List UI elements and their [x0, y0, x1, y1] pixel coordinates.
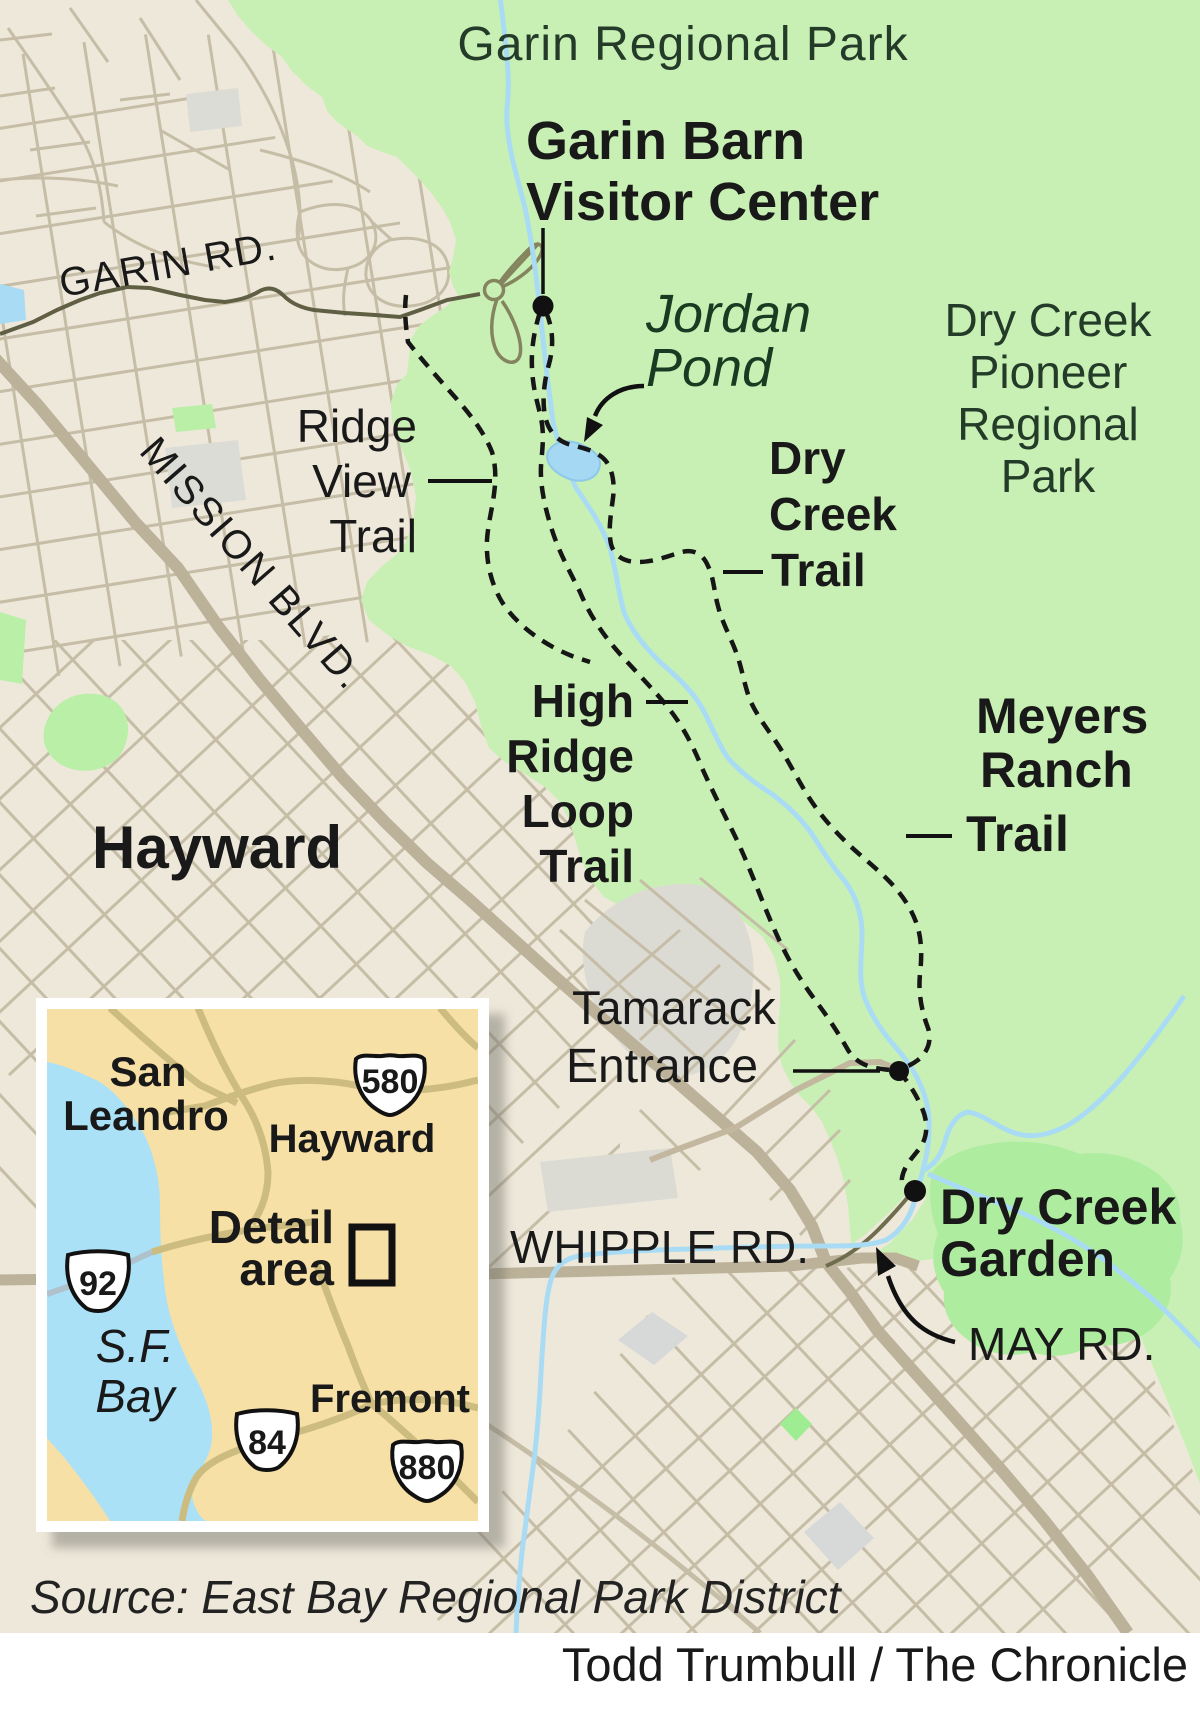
svg-text:Ridge: Ridge: [506, 730, 634, 782]
svg-text:Creek: Creek: [769, 488, 897, 540]
svg-text:Tamarack: Tamarack: [572, 981, 776, 1034]
svg-text:Pond: Pond: [646, 338, 774, 398]
svg-text:Trail: Trail: [966, 806, 1069, 862]
svg-text:WHIPPLE RD.: WHIPPLE RD.: [510, 1221, 809, 1273]
svg-text:Garin Regional Park: Garin Regional Park: [457, 18, 908, 71]
svg-text:92: 92: [79, 1265, 117, 1303]
svg-text:S.F.: S.F.: [96, 1320, 174, 1372]
svg-text:Regional: Regional: [957, 398, 1139, 450]
svg-text:MAY RD.: MAY RD.: [968, 1318, 1155, 1370]
svg-text:Dry Creek: Dry Creek: [944, 294, 1152, 346]
svg-text:Park: Park: [1001, 450, 1097, 502]
svg-text:84: 84: [248, 1424, 286, 1462]
svg-text:Jordan: Jordan: [645, 284, 811, 344]
svg-text:Leandro: Leandro: [63, 1092, 229, 1139]
svg-text:Hayward: Hayward: [92, 814, 342, 881]
svg-text:High: High: [532, 675, 634, 727]
svg-text:View: View: [312, 455, 412, 507]
svg-text:Trail: Trail: [771, 544, 866, 596]
svg-text:Ridge: Ridge: [297, 400, 417, 452]
svg-text:area: area: [239, 1243, 334, 1295]
svg-text:Entrance: Entrance: [566, 1040, 758, 1093]
svg-text:Pioneer: Pioneer: [969, 346, 1128, 398]
svg-text:Trail: Trail: [329, 510, 417, 562]
svg-text:Bay: Bay: [95, 1370, 177, 1422]
svg-text:Todd Trumbull / The Chronicle: Todd Trumbull / The Chronicle: [562, 1638, 1188, 1691]
svg-text:Ranch: Ranch: [980, 742, 1133, 798]
svg-text:Hayward: Hayward: [269, 1117, 436, 1161]
svg-text:Garin Barn: Garin Barn: [526, 111, 805, 171]
svg-text:Garden: Garden: [940, 1231, 1115, 1287]
svg-text:Dry: Dry: [769, 432, 846, 484]
svg-text:Meyers: Meyers: [976, 688, 1148, 744]
svg-text:San: San: [109, 1048, 186, 1095]
svg-text:880: 880: [399, 1449, 456, 1487]
svg-text:Trail: Trail: [539, 840, 634, 892]
svg-text:Loop: Loop: [522, 785, 634, 837]
svg-text:Fremont: Fremont: [310, 1377, 470, 1421]
svg-text:Source: East Bay Regional Park: Source: East Bay Regional Park District: [30, 1571, 843, 1623]
svg-text:Dry Creek: Dry Creek: [940, 1179, 1176, 1235]
svg-text:580: 580: [362, 1063, 419, 1101]
svg-text:Visitor Center: Visitor Center: [526, 172, 879, 232]
